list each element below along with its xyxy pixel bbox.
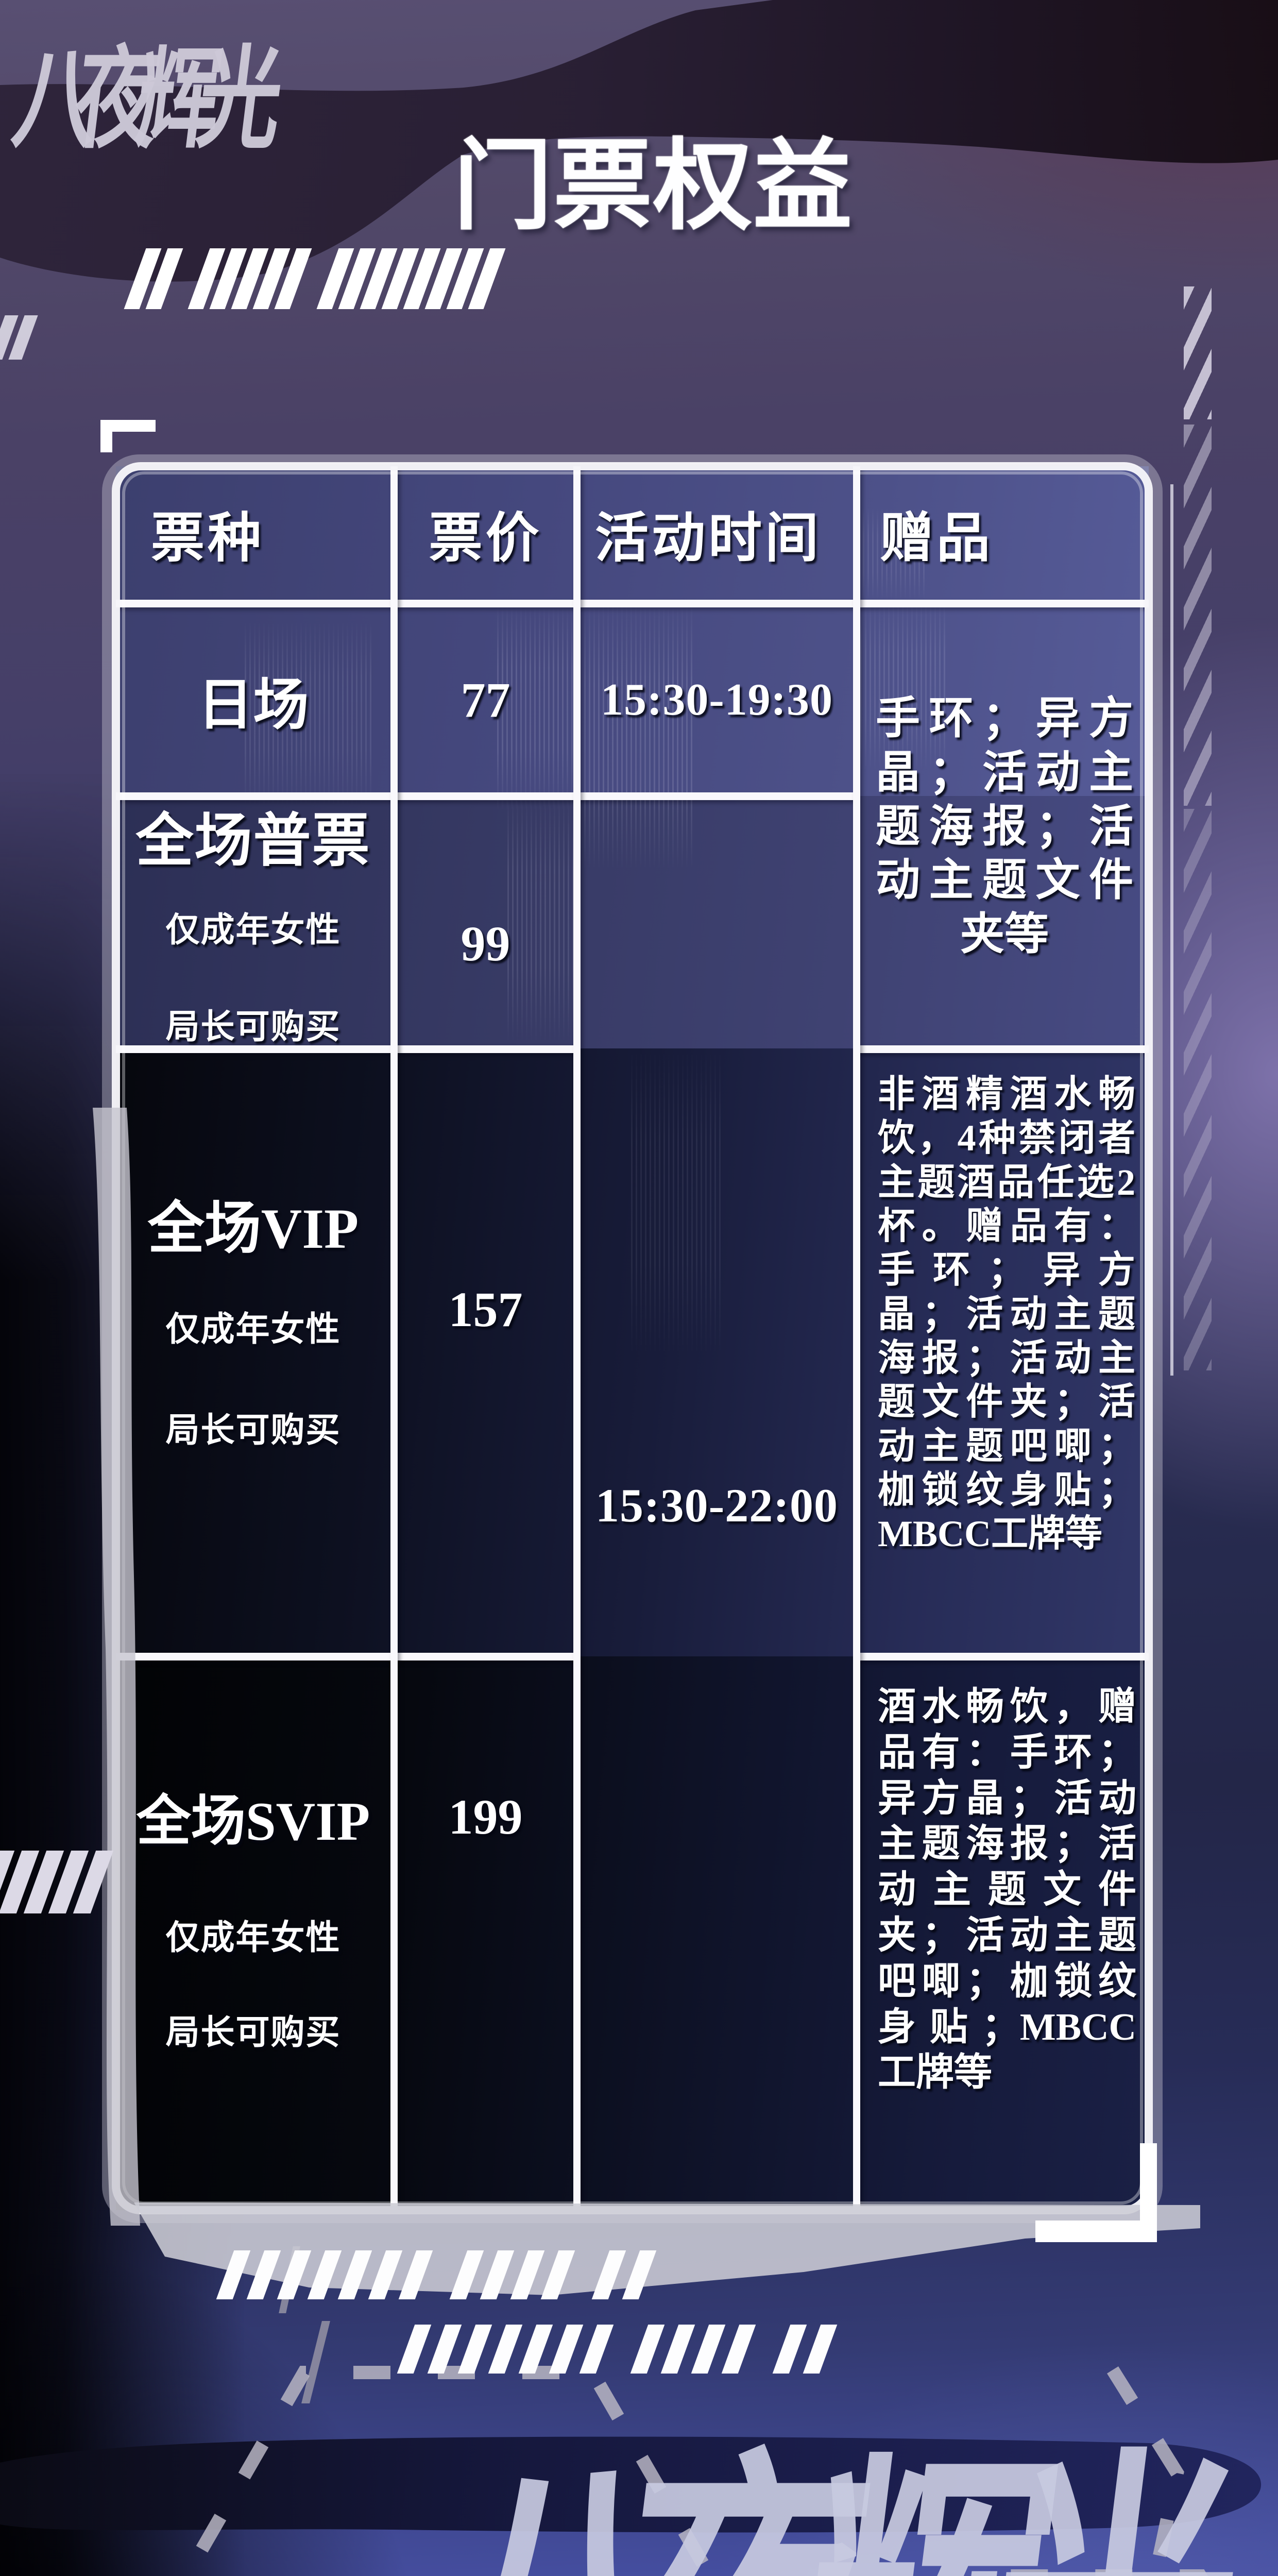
slash-bar	[368, 2250, 403, 2299]
slash-bar	[277, 2250, 312, 2299]
slash-gap	[580, 2250, 601, 2256]
slash-bar	[399, 2250, 433, 2299]
frame-left-brush	[93, 1108, 140, 2226]
hazard-slashes-bottom-1	[225, 2250, 661, 2299]
slash-bar	[308, 2250, 342, 2299]
footer-brand-logo: 八夜辉光	[407, 2347, 1211, 2576]
slash-bar	[541, 2250, 575, 2299]
hazard-slashes-top	[135, 248, 501, 309]
slash-gap	[438, 2250, 458, 2256]
slash-bar	[450, 2250, 484, 2299]
slash-bar	[480, 2250, 515, 2299]
slash-gap	[761, 2325, 781, 2330]
slash-bar	[622, 2250, 657, 2299]
slash-bar	[338, 2250, 372, 2299]
corner-bracket-top-left	[100, 420, 156, 452]
slash-bar	[428, 2325, 462, 2374]
poster: 票种 票价 活动时间 赠品 日场 77 15:30-19:30 全场普票 仅成年…	[0, 0, 1278, 2576]
brand-logo: 八夜辉光	[6, 9, 272, 170]
left-edge-marks	[0, 315, 36, 360]
table-frame	[62, 392, 1241, 2329]
page-title: 门票权益	[453, 106, 853, 249]
slash-bar	[510, 2250, 545, 2299]
left-edge-hatch	[0, 1851, 109, 1913]
slash-bar	[247, 2250, 281, 2299]
slash-bar	[592, 2250, 626, 2299]
slash-gap	[619, 2325, 639, 2330]
